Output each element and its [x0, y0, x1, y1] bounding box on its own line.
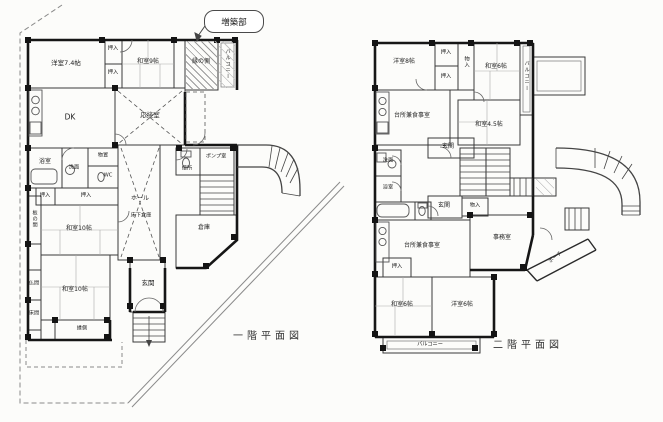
- extension-callout-label: 増築部: [221, 16, 247, 28]
- room-label-f2-oshiire-a: 押入: [441, 50, 451, 55]
- room-label-f2-monoire-a: 物入: [463, 56, 468, 68]
- room-label-pump: ポンプ室: [206, 154, 227, 159]
- room-label-oshiire-a: 押入: [108, 46, 118, 51]
- room-label-daidokoro-upper: 台所兼食事室: [394, 113, 430, 119]
- room-label-balcony-right: バルコニー: [523, 61, 528, 92]
- room-label-yoshitsu6: 洋室6帖: [451, 302, 473, 308]
- room-label-yokushitsu1: 浴室: [39, 159, 51, 165]
- room-label-washitsu6b: 和室6帖: [391, 302, 413, 308]
- room-label-ennogawa: 縁の側: [192, 59, 210, 65]
- room-label-f2-yokushitsu: 浴室: [383, 185, 393, 190]
- room-label-engawa: 縁側: [77, 326, 87, 331]
- room-label-f2-monoire-b: 物入: [470, 203, 480, 208]
- room-label-washitsu10a: 和室10帖: [66, 226, 92, 232]
- room-label-butsuma: 仏間: [29, 281, 39, 286]
- room-label-f2-senmen: 洗面: [383, 158, 393, 163]
- room-label-benjo: 便所: [182, 166, 192, 171]
- floor1-fixtures: [29, 90, 191, 184]
- room-label-ousetsu: 応接室: [140, 112, 160, 119]
- room-label-oshiire-b: 押入: [108, 70, 118, 75]
- room-label-washitsu45: 和室4.5帖: [475, 122, 503, 128]
- plan-linework: [0, 0, 663, 422]
- room-label-yukashita-souko: 床下倉庫: [131, 213, 152, 218]
- room-label-washitsu9: 和室9帖: [137, 59, 159, 65]
- room-label-oshiire-c: 押入: [40, 193, 50, 198]
- extension-hatch: [186, 41, 217, 89]
- room-label-genkan1: 玄関: [142, 280, 155, 287]
- room-label-wc1: WC: [104, 173, 113, 178]
- room-label-genkan-lower: 玄関: [438, 203, 450, 209]
- room-label-monooki: 物置: [98, 153, 108, 158]
- room-label-balcony-bottom: バルコニー: [417, 342, 443, 347]
- room-label-tokonoma: 床間: [29, 311, 39, 316]
- room-label-yoshitsu74: 洋室7.4帖: [51, 60, 81, 67]
- room-label-oshiire-d: 押入: [81, 193, 91, 198]
- entry-arrow: [146, 340, 152, 347]
- floor2-caption: 二階平面図: [493, 341, 563, 351]
- room-label-souko: 倉庫: [198, 225, 210, 231]
- room-label-daidokoro-lower: 台所兼食事室: [404, 243, 440, 249]
- room-label-hall: ホール: [131, 196, 149, 202]
- room-label-senmen1: 洗面: [69, 165, 79, 170]
- room-label-dk: DK: [65, 113, 76, 121]
- room-label-washitsu10b: 和室10帖: [62, 287, 88, 293]
- room-label-balcony1: バルコニー: [224, 49, 229, 80]
- extension-callout: 増築部: [204, 10, 264, 33]
- room-label-yoshitsu8: 洋室8帖: [393, 59, 415, 65]
- stair-landing-hatch: [536, 179, 554, 195]
- floor2-tatami-lines: [375, 43, 520, 335]
- room-label-f2-oshiire-b: 押入: [441, 74, 451, 79]
- room-label-jimushitsu: 事務室: [493, 235, 511, 241]
- floor1-door-arcs: [62, 40, 205, 312]
- room-label-f2-oshiire-c: 押入: [392, 264, 402, 269]
- room-label-washitsu6a: 和室6帖: [485, 64, 507, 70]
- floor-plan-sheet: 増築部 洋室7.4帖 押入 押入 和室9帖 縁の側 バルコニー DK 応接室 浴…: [0, 0, 663, 422]
- room-label-genkan-upper: 玄関: [442, 144, 454, 150]
- floor2-porch-walls: [527, 239, 596, 281]
- floor1-caption: 一階平面図: [233, 332, 303, 342]
- floor1-dashed-marks: [118, 91, 205, 257]
- room-label-itanoma: 板の間: [31, 210, 36, 229]
